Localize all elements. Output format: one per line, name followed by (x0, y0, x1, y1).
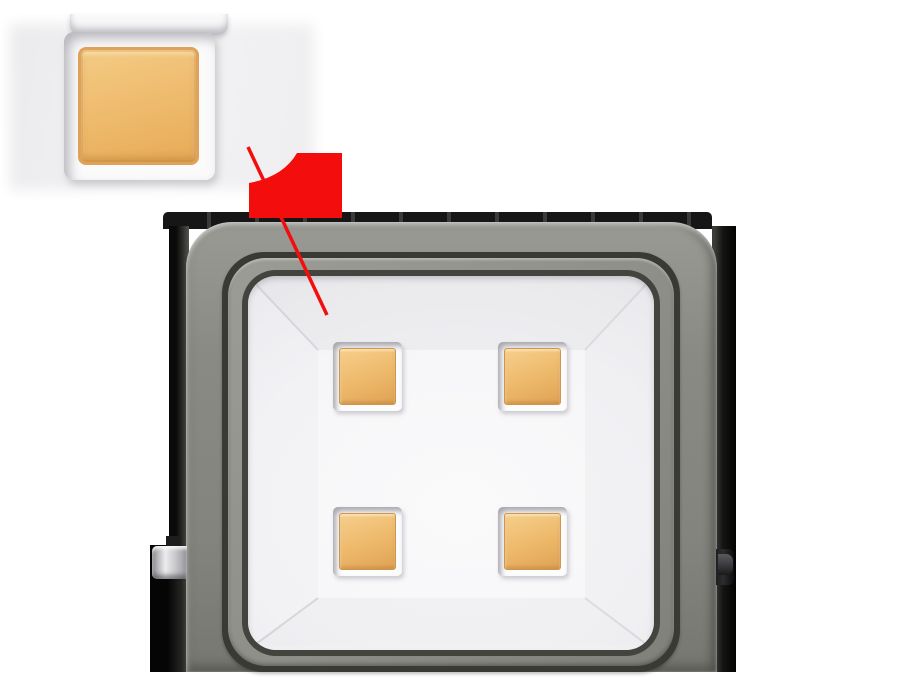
reflector-bevel-shading (248, 276, 654, 650)
reflector-face (248, 276, 654, 650)
bracket-pivot-bolt-right (718, 554, 733, 575)
magnified-led-inset (0, 14, 324, 200)
magnified-led-frame (64, 32, 215, 180)
product-image-stage (0, 0, 900, 695)
bracket-pivot-bolt-left (152, 546, 187, 579)
magnified-led-chip (78, 47, 199, 165)
